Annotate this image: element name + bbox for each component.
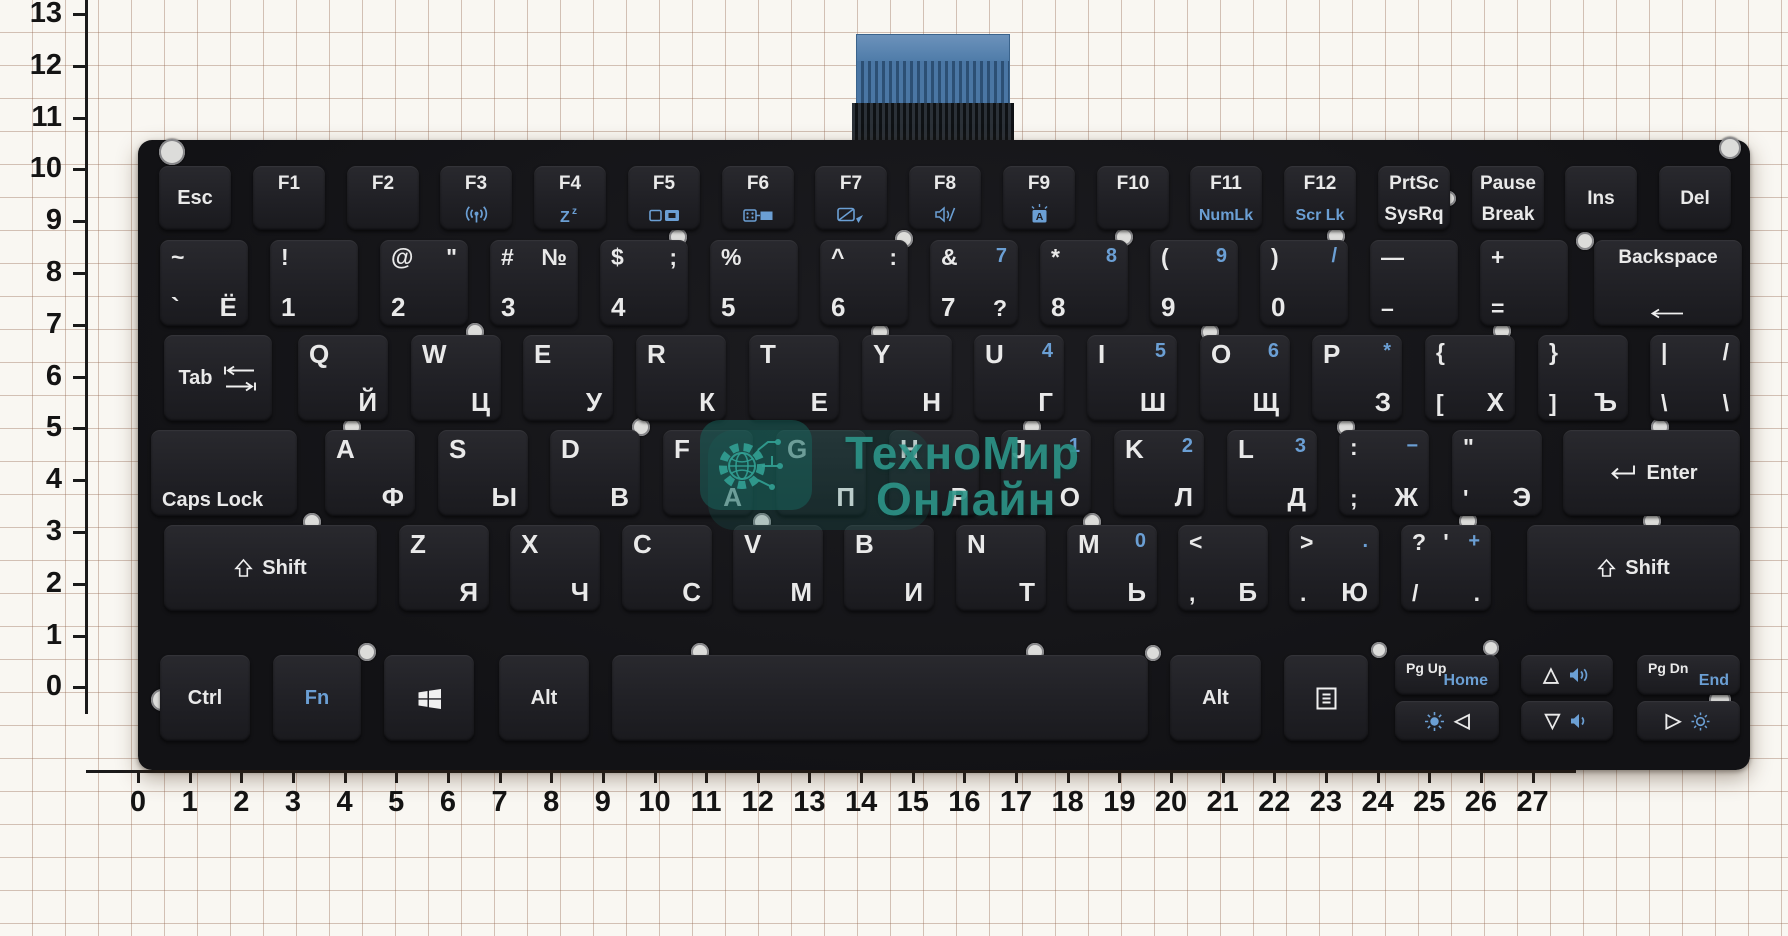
key-shift-left: Shift xyxy=(164,525,377,611)
ruler-number: 11 xyxy=(2,100,62,133)
key-legend: ' xyxy=(1463,487,1468,510)
key-legend: 6 xyxy=(831,294,845,320)
key-legend: Alt xyxy=(531,688,558,708)
key-legend: , xyxy=(1189,582,1195,605)
key-legend: [ xyxy=(1436,392,1444,415)
ruler-number: 1 xyxy=(2,618,62,651)
ruler-number: 2 xyxy=(233,786,249,819)
key-legend: Del xyxy=(1680,189,1710,208)
key-legend: Й xyxy=(358,389,377,415)
key-legend: Fn xyxy=(305,688,329,708)
key-legend: F4 xyxy=(534,174,606,193)
ruler-number: 10 xyxy=(638,786,670,819)
key-f3: F3 xyxy=(440,166,512,230)
key-legend: T xyxy=(760,341,776,367)
key-ctrl: Ctrl xyxy=(160,655,250,741)
ruler-tick xyxy=(73,686,85,689)
key-legend: Y xyxy=(873,341,890,367)
menu-icon xyxy=(1315,686,1338,711)
key-legend: Ctrl xyxy=(188,688,222,708)
ruler-number: 4 xyxy=(2,463,62,496)
ruler-tick xyxy=(73,427,85,430)
key-legend: 1 xyxy=(281,294,295,320)
key-legend: M xyxy=(1078,531,1100,557)
key-legend: = xyxy=(1491,297,1504,320)
key-p: P*З xyxy=(1312,335,1402,421)
ruler-tick xyxy=(73,376,85,379)
ruler-tick xyxy=(963,773,966,783)
ruler-number: 3 xyxy=(285,786,301,819)
ruler-tick xyxy=(499,773,502,783)
key-legend: − xyxy=(1406,436,1418,456)
key-legend: } xyxy=(1549,341,1558,364)
key-legend: { xyxy=(1436,341,1445,364)
svg-text:Z: Z xyxy=(560,209,570,224)
key-legend: H xyxy=(900,436,919,462)
key-legend: Home xyxy=(1444,673,1488,689)
key-esc: Esc xyxy=(159,166,231,230)
ruler-tick xyxy=(73,324,85,327)
key-f2: F2 xyxy=(347,166,419,230)
key-legend: F1 xyxy=(253,174,325,193)
key-4: $;4 xyxy=(600,240,688,326)
key-legend: ▽ xyxy=(1545,711,1560,731)
key-legend: В xyxy=(610,484,629,510)
key-legend: . xyxy=(1362,531,1368,551)
key-legend: / xyxy=(1331,246,1337,266)
key-legend: ^ xyxy=(831,246,844,269)
screw-hole xyxy=(358,643,376,661)
ruler-number: 11 xyxy=(691,786,722,819)
key-f5: F5 xyxy=(628,166,700,230)
key-legend: 9 xyxy=(1161,294,1175,320)
key-d: DВ xyxy=(550,430,640,516)
key-legend: 9 xyxy=(1216,246,1227,266)
key-legend: \ xyxy=(1661,392,1667,415)
key-period: >..Ю xyxy=(1289,525,1379,611)
key-legend: Ц xyxy=(471,389,490,415)
key-3: #№3 xyxy=(490,240,578,326)
key-v: VМ xyxy=(733,525,823,611)
shift-arrow-icon xyxy=(234,558,253,579)
key-1: !1 xyxy=(270,240,358,326)
ruler-tick xyxy=(1170,773,1173,783)
key-legend: E xyxy=(534,341,551,367)
display-switch-icon xyxy=(722,208,794,224)
key-legend: ▷ xyxy=(1666,711,1681,731)
ruler-tick xyxy=(1377,773,1380,783)
ruler-number: 15 xyxy=(897,786,929,819)
ruler-number: 21 xyxy=(1207,786,1239,819)
key-legend: З xyxy=(1375,389,1391,415)
key-legend: A xyxy=(336,436,355,462)
key-legend: Ф xyxy=(382,484,404,510)
key-legend: I xyxy=(1098,341,1105,367)
volume-up-icon xyxy=(1568,666,1591,684)
key-legend: П xyxy=(836,484,855,510)
shift-arrow-icon xyxy=(1597,558,1616,579)
key-legend: F11 xyxy=(1190,174,1262,193)
ruler-tick xyxy=(73,13,85,16)
key-legend: ! xyxy=(281,246,289,269)
key-backslash: |/\\ xyxy=(1650,335,1740,421)
key-legend: ? xyxy=(993,297,1007,320)
ruler-tick xyxy=(912,773,915,783)
key-legend: Ё xyxy=(220,294,237,320)
ruler-tick xyxy=(1222,773,1225,783)
key-legend: F6 xyxy=(722,174,794,193)
ruler-tick xyxy=(1480,773,1483,783)
key-legend: * xyxy=(1051,246,1060,269)
key-legend: G xyxy=(787,436,807,462)
key-legend: Caps Lock xyxy=(162,490,263,510)
key-q: QЙ xyxy=(298,335,388,421)
ruler-number: 6 xyxy=(440,786,456,819)
key-f11: F11NumLk xyxy=(1190,166,1262,230)
ruler-number: 17 xyxy=(1000,786,1032,819)
key-legend: 4 xyxy=(611,294,625,320)
ruler-number: 13 xyxy=(2,0,62,30)
key-shift-right: Shift xyxy=(1527,525,1740,611)
ribbon-cable-top xyxy=(856,34,1010,61)
key-u: U4Г xyxy=(974,335,1064,421)
key-space xyxy=(612,655,1148,741)
ruler-bottom-line xyxy=(86,770,1576,773)
key-legend: 3 xyxy=(1295,436,1306,456)
key-ins: Ins xyxy=(1565,166,1637,230)
key-legend: ( xyxy=(1161,246,1169,269)
key-legend: B xyxy=(855,531,874,557)
key-legend: Shift xyxy=(1625,558,1669,578)
key-legend: 7 xyxy=(996,246,1007,266)
key-n: NТ xyxy=(956,525,1046,611)
key-legend: Pg Dn xyxy=(1648,661,1688,675)
key-legend: ~ xyxy=(171,246,184,269)
key-legend: C xyxy=(633,531,652,557)
key-del: Del xyxy=(1659,166,1731,230)
key-2: @"2 xyxy=(380,240,468,326)
ruler-tick xyxy=(395,773,398,783)
key-prtsc: PrtScSysRq xyxy=(1378,166,1450,230)
key-l: L3Д xyxy=(1227,430,1317,516)
key-legend: ◁ xyxy=(1454,711,1469,731)
ruler-tick xyxy=(757,773,760,783)
key-legend: 6 xyxy=(1268,341,1279,361)
mute-icon xyxy=(909,205,981,224)
svg-text:A: A xyxy=(1035,211,1043,223)
key-7: &77? xyxy=(930,240,1018,326)
key-legend: P xyxy=(1323,341,1340,367)
ruler-number: 12 xyxy=(2,49,62,82)
key-f7: F7 xyxy=(815,166,887,230)
key-legend: К xyxy=(699,389,715,415)
key-legend: Tab xyxy=(178,368,212,388)
ruler-number: 5 xyxy=(2,411,62,444)
key-legend: PrtSc xyxy=(1378,174,1450,193)
ruler-number: 7 xyxy=(2,308,62,341)
ruler-tick xyxy=(240,773,243,783)
ruler-tick xyxy=(73,531,85,534)
key-legend: + xyxy=(1468,531,1480,551)
ruler-tick xyxy=(73,272,85,275)
key-legend: F3 xyxy=(440,174,512,193)
key-legend: — xyxy=(1381,246,1404,269)
key-legend: ] xyxy=(1549,392,1557,415)
keyboard-plate: EscF1F2F3F4ZzF5F6F7F8F9AF10F11NumLkF12Sc… xyxy=(138,140,1750,770)
key-m: M0Ь xyxy=(1067,525,1157,611)
key-legend: # xyxy=(501,246,514,269)
key-c: CС xyxy=(622,525,712,611)
key-legend: ; xyxy=(669,246,677,269)
key-w: WЦ xyxy=(411,335,501,421)
ruler-tick xyxy=(73,220,85,223)
key-f1: F1 xyxy=(253,166,325,230)
ruler-number: 19 xyxy=(1103,786,1135,819)
key-legend: / xyxy=(1723,341,1729,364)
key-legend: L xyxy=(1238,436,1254,462)
sun-outline-icon xyxy=(1690,711,1711,732)
key-legend: 5 xyxy=(1155,341,1166,361)
key-legend: 7 xyxy=(941,294,955,320)
key-legend: : xyxy=(889,246,897,269)
key-legend: F8 xyxy=(909,174,981,193)
key-f8: F8 xyxy=(909,166,981,230)
ruler-tick xyxy=(860,773,863,783)
key-y: YН xyxy=(862,335,952,421)
key-legend: " xyxy=(1463,436,1474,459)
key-legend: J xyxy=(1012,436,1026,462)
ruler-tick xyxy=(292,773,295,783)
backspace-arrow-icon xyxy=(1594,307,1742,320)
ruler-tick xyxy=(654,773,657,783)
key-legend: Д xyxy=(1287,484,1306,510)
ruler-tick xyxy=(73,168,85,171)
ruler-tick xyxy=(1067,773,1070,783)
key-pgdn-end: Pg DnEnd xyxy=(1637,655,1740,695)
key-legend: . xyxy=(1474,582,1480,605)
ruler-number: 27 xyxy=(1516,786,1548,819)
svg-text:z: z xyxy=(572,206,577,217)
ruler-tick xyxy=(137,773,140,783)
ruler-number: 12 xyxy=(742,786,774,819)
display-toggle-icon xyxy=(628,208,700,224)
key-legend: 2 xyxy=(1182,436,1193,456)
key-legend: End xyxy=(1699,673,1729,689)
key-legend: 1 xyxy=(1069,436,1080,456)
key-legend: Г xyxy=(1038,389,1053,415)
key-legend: Ъ xyxy=(1594,389,1617,415)
key-f6: F6 xyxy=(722,166,794,230)
key-z: ZЯ xyxy=(399,525,489,611)
key-legend: F xyxy=(674,436,690,462)
key-j: J1О xyxy=(1001,430,1091,516)
key-legend: Pg Up xyxy=(1406,661,1446,675)
key-e: EУ xyxy=(523,335,613,421)
key-legend: > xyxy=(1300,531,1313,554)
key-legend: / xyxy=(1412,582,1418,605)
key-arrow-left-brightness: ◁ xyxy=(1395,701,1499,741)
kbd-light-icon: A xyxy=(1003,203,1075,224)
key-arrow-right-brightness: ▷ xyxy=(1637,701,1740,741)
key-legend: @ xyxy=(391,246,413,269)
ruler-tick xyxy=(73,65,85,68)
key-0: )/0 xyxy=(1260,240,1348,326)
key-legend: Alt xyxy=(1202,688,1229,708)
ruler-tick xyxy=(73,583,85,586)
ruler-number: 25 xyxy=(1413,786,1445,819)
key-s: SЫ xyxy=(438,430,528,516)
key-legend: Н xyxy=(922,389,941,415)
key-6: ^:6 xyxy=(820,240,908,326)
key-bracket-left: {[Х xyxy=(1425,335,1515,421)
key-legend: K xyxy=(1125,436,1144,462)
product-photo: EscF1F2F3F4ZzF5F6F7F8F9AF10F11NumLkF12Sc… xyxy=(0,0,1788,936)
ruler-tick xyxy=(1532,773,1535,783)
key-legend: 5 xyxy=(721,294,735,320)
key-legend: F10 xyxy=(1097,174,1169,193)
key-legend: O xyxy=(1211,341,1231,367)
volume-down-icon xyxy=(1569,712,1589,730)
key-legend: 8 xyxy=(1051,294,1065,320)
wifi-icon xyxy=(440,205,512,224)
key-legend: Т xyxy=(1019,579,1035,605)
key-o: O6Щ xyxy=(1200,335,1290,421)
sun-filled-icon xyxy=(1424,711,1445,732)
key-legend: D xyxy=(561,436,580,462)
key-9: (99 xyxy=(1150,240,1238,326)
screw-hole xyxy=(1145,645,1161,661)
key-legend: С xyxy=(682,579,701,605)
key-grave: ~`Ё xyxy=(160,240,248,326)
key-legend: & xyxy=(941,246,958,269)
key-legend: Ж xyxy=(1395,484,1419,510)
ruler-number: 0 xyxy=(130,786,146,819)
key-legend: Я xyxy=(459,579,478,605)
key-legend: У xyxy=(586,389,602,415)
key-legend: . xyxy=(1300,582,1306,605)
key-legend: Pause xyxy=(1472,174,1544,193)
key-legend: * xyxy=(1383,341,1391,361)
ruler-number: 14 xyxy=(845,786,877,819)
ruler-number: 18 xyxy=(1052,786,1084,819)
key-legend: Ш xyxy=(1140,389,1166,415)
key-quote: "'Э xyxy=(1452,430,1542,516)
key-semicolon: :−;Ж xyxy=(1339,430,1429,516)
key-f4: F4Zz xyxy=(534,166,606,230)
key-legend: 8 xyxy=(1106,246,1117,266)
key-legend: М xyxy=(790,579,812,605)
key-legend: N xyxy=(967,531,986,557)
screw-hole xyxy=(1371,642,1387,658)
key-8: *88 xyxy=(1040,240,1128,326)
key-legend: А xyxy=(723,484,742,510)
key-arrow-up-volume: △ xyxy=(1521,655,1613,695)
ruler-left-line xyxy=(85,0,88,714)
ruler-number: 24 xyxy=(1361,786,1393,819)
ruler-number: 9 xyxy=(595,786,611,819)
key-legend: F7 xyxy=(815,174,887,193)
ruler-number: 7 xyxy=(491,786,507,819)
key-pause: PauseBreak xyxy=(1472,166,1544,230)
key-legend: И xyxy=(904,579,923,605)
key-fn: Fn xyxy=(273,655,361,741)
key-legend: Scr Lk xyxy=(1284,208,1356,224)
key-i: I5Ш xyxy=(1087,335,1177,421)
key-legend: № xyxy=(541,246,567,269)
ruler-tick xyxy=(1118,773,1121,783)
key-legend: Щ xyxy=(1253,389,1280,415)
key-r: RК xyxy=(636,335,726,421)
key-legend: \ xyxy=(1723,392,1729,415)
key-legend: Ь xyxy=(1127,579,1146,605)
key-slash: ?'+/. xyxy=(1401,525,1491,611)
ruler-tick xyxy=(550,773,553,783)
key-legend: Э xyxy=(1513,484,1532,510)
key-caps-lock: Caps Lock xyxy=(151,430,297,516)
key-legend: Е xyxy=(811,389,828,415)
key-legend: Ы xyxy=(492,484,517,510)
key-equals: += xyxy=(1480,240,1568,326)
ruler-tick xyxy=(1325,773,1328,783)
key-legend: X xyxy=(521,531,538,557)
ruler-tick xyxy=(189,773,192,783)
enter-arrow-icon xyxy=(1605,463,1637,484)
key-legend: 4 xyxy=(1042,341,1053,361)
key-legend: " xyxy=(446,246,457,269)
key-legend: Shift xyxy=(262,558,306,578)
key-legend: Б xyxy=(1238,579,1257,605)
key-legend: – xyxy=(1381,297,1394,320)
key-legend: ' xyxy=(1443,531,1448,554)
ruler-tick xyxy=(1015,773,1018,783)
key-legend: $ xyxy=(611,246,624,269)
key-backspace: Backspace xyxy=(1594,240,1742,326)
ruler-number: 23 xyxy=(1310,786,1342,819)
key-arrow-down-volume: ▽ xyxy=(1521,701,1613,741)
key-legend: Esc xyxy=(177,188,213,208)
key-legend: Q xyxy=(309,341,329,367)
key-tab: Tab xyxy=(164,335,272,421)
ruler-number: 0 xyxy=(2,670,62,703)
ruler-number: 5 xyxy=(388,786,404,819)
key-legend: F9 xyxy=(1003,174,1075,193)
key-enter: Enter xyxy=(1563,430,1740,516)
ruler-tick xyxy=(73,117,85,120)
ruler-number: 1 xyxy=(182,786,198,819)
key-legend: Л xyxy=(1175,484,1193,510)
key-g: GП xyxy=(776,430,866,516)
key-legend: 3 xyxy=(501,294,515,320)
screw-hole xyxy=(159,139,185,165)
key-legend: W xyxy=(422,341,447,367)
key-comma: <,Б xyxy=(1178,525,1268,611)
key-legend: Р xyxy=(951,484,968,510)
key-legend: % xyxy=(721,246,741,269)
ruler-number: 22 xyxy=(1258,786,1290,819)
key-legend: 0 xyxy=(1135,531,1146,551)
key-legend: S xyxy=(449,436,466,462)
key-legend: < xyxy=(1189,531,1202,554)
key-legend: F12 xyxy=(1284,174,1356,193)
key-legend: + xyxy=(1491,246,1504,269)
key-legend: U xyxy=(985,341,1004,367)
tab-arrows-icon xyxy=(222,365,258,392)
ruler-number: 3 xyxy=(2,515,62,548)
key-legend: △ xyxy=(1543,665,1558,685)
key-legend: Z xyxy=(410,531,426,557)
key-menu xyxy=(1284,655,1368,741)
key-legend: Ins xyxy=(1587,189,1614,208)
